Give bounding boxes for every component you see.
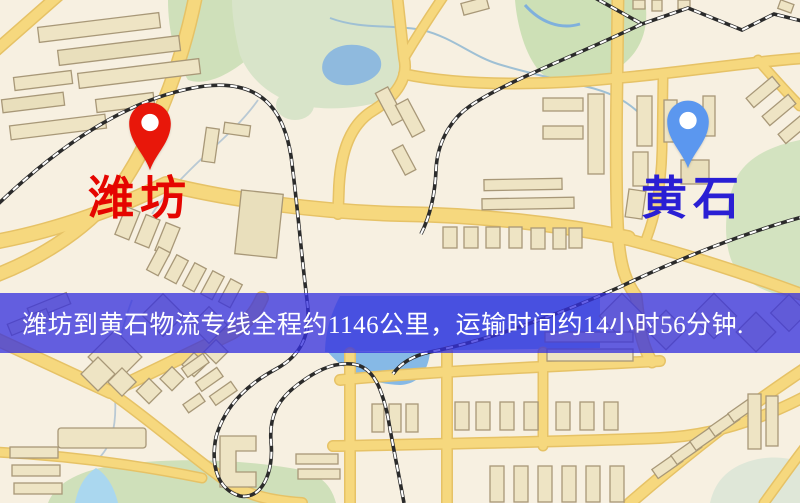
origin-pin-hole — [141, 114, 158, 131]
route-info-banner: 潍坊到黄石物流专线全程约1146公里，运输时间约14小时56分钟. — [0, 293, 800, 353]
route-info-text: 潍坊到黄石物流专线全程约1146公里，运输时间约14小时56分钟. — [22, 305, 744, 341]
destination-label: 黄石 — [641, 176, 745, 222]
map-screenshot: 潍坊 黄石 潍坊到黄石物流专线全程约1146公里，运输时间约14小时56分钟. — [0, 0, 800, 503]
destination-pin-icon[interactable] — [662, 97, 714, 170]
map-background — [0, 0, 800, 503]
origin-pin-icon[interactable] — [124, 99, 176, 172]
destination-pin-body — [667, 101, 709, 169]
destination-pin-hole — [679, 112, 696, 129]
origin-pin-body — [129, 103, 171, 171]
origin-label: 潍坊 — [88, 176, 192, 222]
